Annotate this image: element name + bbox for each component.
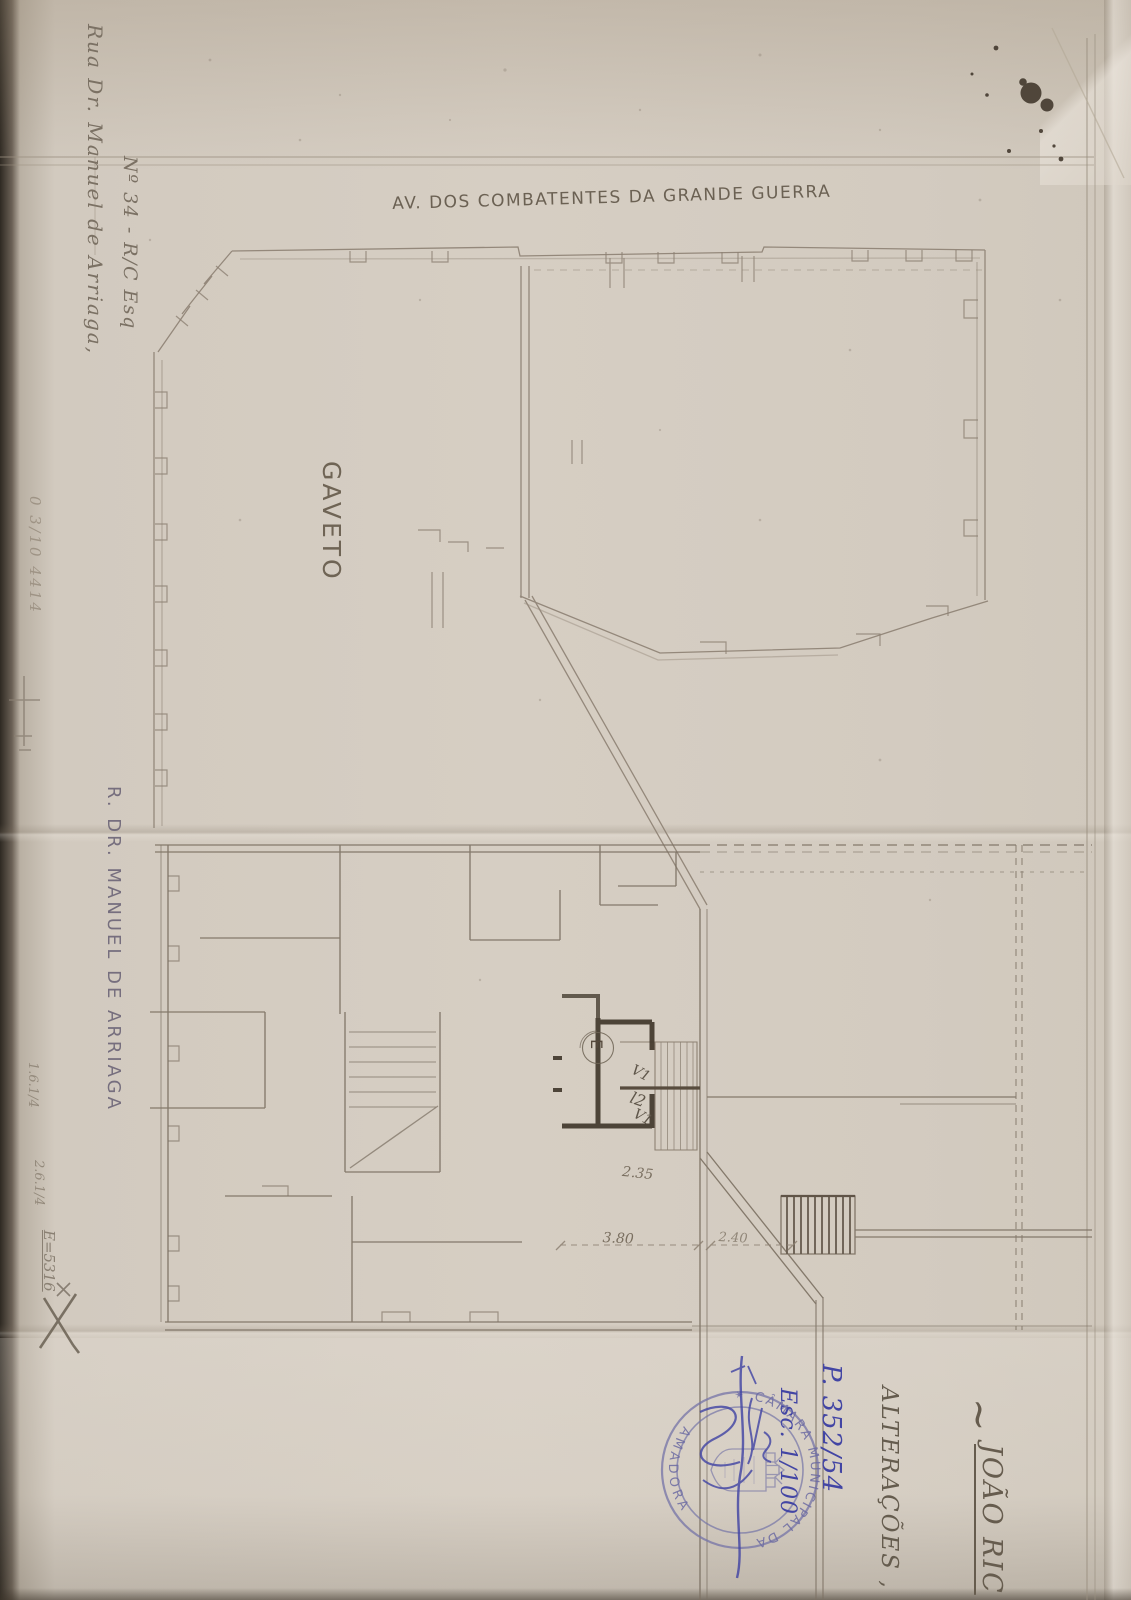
teeth-diagonal	[176, 266, 228, 326]
owner-name: JOÃO RIC	[976, 1444, 1007, 1595]
site-main-diagonal	[525, 596, 707, 909]
stair-diagonal	[350, 1106, 438, 1168]
margin-note-1: 1.6.1/4	[25, 1062, 40, 1108]
site-outline	[154, 247, 988, 909]
gaveto-label: GAVETO	[317, 461, 346, 582]
ink-speck	[971, 73, 974, 76]
entrance-label: E	[587, 1039, 606, 1049]
dim-380-label: 3.80	[602, 1230, 634, 1248]
street-left-label: R. DR. MANUEL DE ARRIAGA	[103, 786, 124, 1112]
dim-240-label: 2.40	[718, 1230, 748, 1246]
teeth-lower-walls	[262, 1186, 498, 1322]
signature-strokes	[748, 1398, 762, 1464]
teeth-top-inner	[610, 256, 754, 288]
small-x-mark	[57, 1283, 70, 1296]
dimension-lines	[556, 1241, 797, 1250]
stamp-star: ✶	[732, 1390, 745, 1399]
street-stair-treads	[787, 1196, 850, 1254]
scanned-floor-plan: CÂMARA MUNICIPAL DA AMADORA ✶ AV. DOS CO…	[0, 0, 1131, 1600]
site-top-edge	[232, 247, 985, 256]
margin-note-2: 2.6.1/4	[31, 1160, 46, 1206]
site-bottom-edge	[520, 596, 988, 653]
dim-235-label: 2.35	[621, 1164, 654, 1183]
stair-treads-left	[349, 1032, 436, 1107]
teeth-right-wall	[964, 300, 978, 536]
teeth-left	[155, 392, 167, 786]
dim-ticks	[556, 1241, 797, 1250]
ink-speck	[1007, 149, 1011, 153]
street-line-right	[855, 1230, 1092, 1237]
teeth-mid	[418, 440, 948, 654]
scale-note: Esc. 1/100	[775, 1388, 800, 1515]
teeth-lower-left	[168, 876, 179, 1301]
teeth-top	[350, 250, 972, 263]
signature-digits	[763, 1432, 771, 1462]
signature-underhook	[703, 1470, 752, 1488]
ink-speck	[994, 46, 999, 51]
x-mark	[40, 1294, 79, 1353]
alteracoes-label: ALTERAÇÕES ,	[876, 1386, 902, 1590]
plan-drawing: CÂMARA MUNICIPAL DA AMADORA ✶	[0, 0, 1131, 1600]
process-number: P. 352/54	[816, 1364, 846, 1493]
ink-speck	[1059, 157, 1064, 162]
door-jambs	[553, 1058, 562, 1090]
site-bottom-edge-2	[524, 603, 838, 660]
site-diagonal-steps	[158, 251, 232, 352]
ink-blobs	[971, 46, 1064, 162]
signature-top-ticks	[731, 1366, 756, 1384]
benchmark-cross	[9, 676, 40, 750]
ink-speck	[1039, 129, 1043, 133]
ink-speck	[1052, 144, 1055, 147]
plan-bottom-wall	[165, 1322, 692, 1330]
stamp-coat-of-arms	[711, 1449, 784, 1491]
ink-speck	[985, 93, 989, 97]
plan-top-wall	[155, 845, 700, 852]
address-line2: Nº 34 - R/C Esq	[119, 156, 141, 330]
address-line1: Rua Dr. Manuel de Arriaga,	[83, 24, 107, 355]
border-frame	[0, 28, 1124, 1600]
ink-blob-small	[1019, 78, 1027, 86]
boundary-diagonal-lower	[700, 1152, 823, 1304]
ink-blob-medium	[1041, 99, 1054, 112]
margin-note-3: E=5316	[40, 1230, 58, 1292]
margin-ref-note: 0 3/10 4414	[26, 496, 44, 614]
dashed-property-line	[1016, 845, 1022, 1330]
corner-fold-line	[1052, 28, 1124, 178]
thick-wall-upper	[562, 994, 598, 1018]
lower-floor-plan	[150, 845, 1092, 1600]
plan-center-rooms	[470, 845, 676, 940]
owner-tilde: ~	[956, 1398, 1002, 1432]
site-central-vertical	[521, 266, 529, 598]
wall-window-teeth	[155, 250, 978, 1322]
entrance-stair-treads	[661, 1042, 693, 1150]
plan-left-rooms	[150, 845, 522, 1322]
signature-loop	[700, 1407, 740, 1466]
